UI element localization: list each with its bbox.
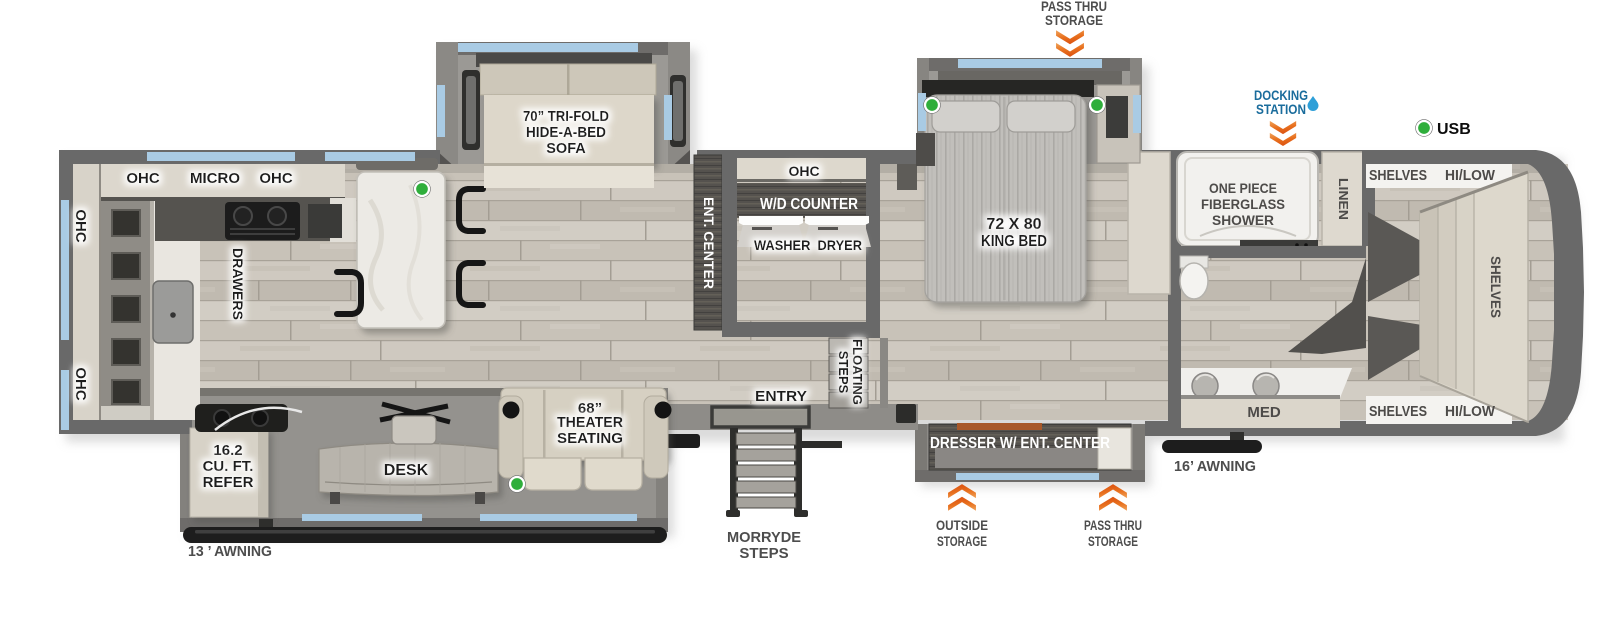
svg-text:HI/LOW: HI/LOW	[1445, 404, 1495, 420]
svg-text:ENT. CENTER: ENT. CENTER	[701, 197, 716, 289]
svg-text:PASS THRU: PASS THRU	[1084, 518, 1142, 533]
svg-text:DRESSER W/ ENT. CENTER: DRESSER W/ ENT. CENTER	[930, 435, 1110, 452]
svg-text:STORAGE: STORAGE	[1088, 534, 1138, 549]
svg-text:13 ’ AWNING: 13 ’ AWNING	[188, 543, 272, 560]
svg-text:WASHER DRYER: WASHER DRYER	[754, 237, 862, 253]
svg-text:FIBERGLASS: FIBERGLASS	[1201, 197, 1285, 212]
svg-text:16.2: 16.2	[213, 442, 242, 459]
svg-text:W/D COUNTER: W/D COUNTER	[760, 196, 858, 213]
svg-text:72 X 80: 72 X 80	[986, 216, 1041, 233]
svg-text:ONE PIECE: ONE PIECE	[1209, 181, 1277, 196]
svg-text:DRAWERS: DRAWERS	[230, 248, 245, 320]
svg-text:STORAGE: STORAGE	[937, 534, 987, 549]
svg-text:DESK: DESK	[384, 462, 429, 479]
svg-text:SHELVES: SHELVES	[1488, 256, 1504, 318]
svg-text:SHOWER: SHOWER	[1212, 213, 1274, 228]
svg-text:OHC: OHC	[72, 209, 89, 243]
svg-text:STATION: STATION	[1256, 101, 1306, 117]
svg-text:70” TRI-FOLD: 70” TRI-FOLD	[523, 109, 609, 125]
svg-text:THEATER: THEATER	[557, 414, 623, 431]
svg-text:SHELVES: SHELVES	[1369, 404, 1427, 420]
svg-text:HIDE-A-BED: HIDE-A-BED	[526, 125, 606, 141]
svg-text:CU. FT.: CU. FT.	[203, 458, 254, 475]
svg-text:OHC: OHC	[126, 170, 160, 187]
svg-text:OHC: OHC	[788, 163, 819, 179]
svg-text:LINEN: LINEN	[1336, 178, 1351, 220]
svg-text:STORAGE: STORAGE	[1045, 12, 1103, 28]
svg-text:KING BED: KING BED	[981, 233, 1047, 250]
svg-text:OHC: OHC	[259, 170, 293, 187]
svg-text:OHC: OHC	[72, 367, 89, 401]
svg-text:ENTRY: ENTRY	[755, 388, 807, 405]
svg-text:STEPS: STEPS	[836, 351, 851, 394]
svg-text:SHELVES: SHELVES	[1369, 168, 1427, 184]
svg-text:REFER: REFER	[203, 474, 254, 491]
svg-text:HI/LOW: HI/LOW	[1445, 168, 1495, 184]
svg-text:MORRYDE: MORRYDE	[727, 529, 801, 546]
svg-text:MICRO: MICRO	[190, 170, 240, 187]
svg-text:FLOATING: FLOATING	[850, 339, 865, 405]
svg-text:USB: USB	[1437, 121, 1471, 138]
svg-text:16’ AWNING: 16’ AWNING	[1174, 458, 1256, 475]
svg-text:MED: MED	[1247, 404, 1281, 421]
svg-text:OUTSIDE: OUTSIDE	[936, 518, 988, 533]
svg-text:SOFA: SOFA	[546, 141, 586, 157]
svg-text:STEPS: STEPS	[739, 545, 788, 562]
svg-text:SEATING: SEATING	[557, 430, 623, 447]
